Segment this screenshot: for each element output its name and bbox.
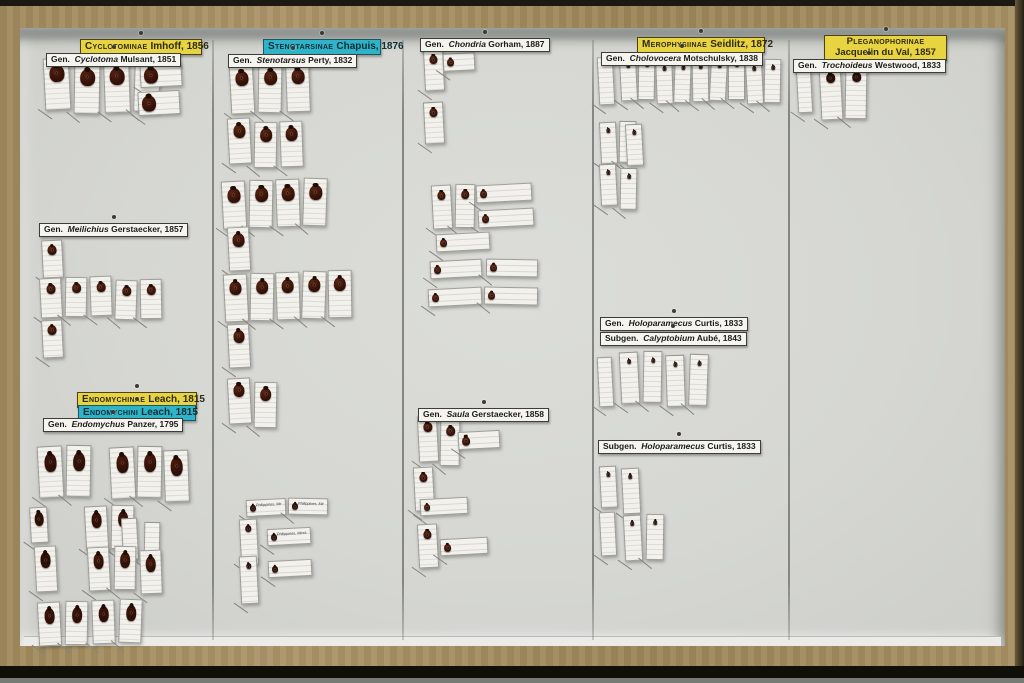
- pin-wire: [720, 98, 734, 109]
- pin-head: [55, 72, 57, 74]
- pin-wire: [630, 98, 644, 109]
- pin-wire: [321, 316, 335, 327]
- locality-caption: Philippines, Mindanao: [256, 501, 282, 507]
- specimen-card: [440, 537, 489, 556]
- pin-wire: [478, 274, 492, 285]
- beetle-specimen: [142, 95, 157, 112]
- specimen-card: [764, 59, 782, 103]
- pin-head: [314, 191, 316, 193]
- beetle-specimen: [232, 233, 245, 248]
- taxon-author: Aubé, 1843: [695, 333, 742, 343]
- pin-wire: [635, 401, 649, 412]
- specimen-card: [254, 382, 278, 428]
- rank-prefix: Gen.: [51, 54, 75, 64]
- beetle-specimen: [144, 453, 156, 472]
- pin-head: [654, 522, 656, 524]
- taxon-author: Leach, 1815: [141, 407, 198, 418]
- specimen-card: Philippines, Mindanao: [246, 498, 287, 517]
- specimen-card: [646, 514, 665, 560]
- specimen-card: [109, 446, 137, 499]
- specimen-card: [87, 546, 111, 591]
- pin-wire: [269, 319, 283, 330]
- pin-head: [426, 426, 428, 428]
- specimen-card: [476, 183, 533, 204]
- pin-wire: [756, 101, 770, 112]
- specimen-card: [275, 272, 301, 321]
- specimen-card: [140, 279, 163, 319]
- specimen-card: [621, 468, 641, 515]
- pin-wire: [421, 306, 435, 317]
- pin-head: [294, 506, 296, 508]
- beetle-specimen: [73, 452, 85, 471]
- specimen-card: [420, 497, 469, 516]
- specimen-card: [417, 416, 439, 463]
- beetle-specimen: [440, 239, 447, 247]
- pin-head: [432, 59, 434, 61]
- pin-wire: [432, 464, 446, 475]
- beetle-specimen: [285, 127, 297, 141]
- taxon-name: Holoparamecus: [641, 441, 705, 451]
- pin-head: [48, 615, 50, 617]
- specimen-card: [328, 270, 353, 318]
- specimen-card: [227, 323, 251, 368]
- pin-head: [98, 560, 100, 562]
- pin-head: [426, 507, 428, 509]
- specimen-card: [34, 545, 58, 592]
- rank-prefix: Gen.: [44, 224, 68, 234]
- pin-head: [75, 287, 77, 289]
- specimen-card: [819, 65, 844, 120]
- pin-head: [95, 519, 97, 521]
- pin-wire: [273, 166, 287, 177]
- beetle-specimen: [291, 69, 305, 84]
- pin-wire: [107, 317, 121, 329]
- beetle-specimen: [93, 553, 104, 570]
- pin-head: [44, 559, 46, 561]
- specimen-card: [118, 599, 143, 644]
- pin-head: [130, 612, 132, 614]
- beetle-specimen: [606, 170, 610, 175]
- specimen-card: [301, 271, 327, 320]
- specimen-card: [417, 524, 439, 569]
- beetle-specimen: [630, 521, 634, 526]
- pin-head: [446, 547, 448, 549]
- beetle-specimen: [260, 128, 272, 142]
- pin-head: [422, 477, 424, 479]
- beetle-specimen: [245, 525, 251, 532]
- pin-head: [682, 67, 684, 69]
- taxon-label-trochoideus-genus: Gen. Trochoideus Westwood, 1833: [793, 59, 946, 73]
- pin-head: [135, 384, 139, 388]
- pin-head: [607, 172, 609, 174]
- taxon-author: Mulsant, 1851: [118, 54, 176, 64]
- pin-head: [150, 74, 152, 76]
- pin-wire: [250, 111, 264, 122]
- locality-caption: Philippines, Mindanao: [277, 530, 307, 536]
- specimen-card: [478, 208, 535, 229]
- rank-prefix: Gen.: [798, 60, 822, 70]
- specimen-card: [268, 559, 313, 578]
- beetle-specimen: [447, 58, 454, 66]
- specimen-card: [227, 226, 251, 271]
- pin-head: [432, 112, 434, 114]
- rank-prefix: Subgen.: [603, 441, 641, 451]
- pin-head: [434, 297, 436, 299]
- beetle-specimen: [256, 280, 268, 294]
- specimen-card: [114, 546, 137, 590]
- taxon-label-cholovocera-genus: Gen. Cholovocera Motschulsky, 1838: [601, 52, 763, 66]
- specimen-card: [65, 601, 89, 645]
- pin-wire: [82, 590, 96, 601]
- beetle-specimen: [80, 69, 95, 86]
- specimen-card: [65, 277, 88, 317]
- specimen-card: [137, 446, 163, 498]
- pin-head: [313, 284, 315, 286]
- taxon-author: Seidlitz, 1872: [710, 39, 773, 50]
- beetle-specimen: [632, 130, 636, 135]
- beetle-specimen: [419, 473, 427, 482]
- column-separator-4: [788, 40, 790, 640]
- specimen-card: [229, 63, 256, 114]
- pin-head: [449, 62, 451, 64]
- specimen-card: [745, 60, 764, 105]
- pin-wire: [246, 426, 260, 437]
- pin-head: [677, 432, 681, 436]
- pin-head: [269, 76, 271, 78]
- pin-head: [78, 460, 80, 462]
- pin-wire: [83, 314, 97, 325]
- beetle-specimen: [145, 556, 156, 572]
- beetle-specimen: [697, 361, 701, 366]
- pin-wire: [418, 90, 432, 101]
- specimen-card: [227, 377, 252, 424]
- beetle-specimen: [281, 279, 293, 293]
- pin-head: [51, 249, 53, 251]
- pin-wire: [269, 226, 283, 237]
- specimen-card: [599, 164, 618, 207]
- beetle-specimen: [446, 426, 455, 436]
- specimen-card: [139, 550, 163, 595]
- taxon-author: Curtis, 1833: [692, 318, 743, 328]
- specimen-card: [431, 185, 453, 230]
- specimen-card: [91, 600, 116, 645]
- pin-head: [855, 76, 857, 78]
- pin-wire: [222, 367, 236, 378]
- pin-wire: [85, 643, 99, 654]
- beetle-specimen: [423, 422, 433, 432]
- specimen-card: [436, 232, 491, 253]
- pin-head: [320, 31, 324, 35]
- beetle-specimen: [482, 215, 489, 223]
- rank-prefix: Gen.: [423, 409, 447, 419]
- specimen-card: [458, 430, 501, 450]
- column-separator-1: [212, 40, 214, 640]
- beetle-specimen: [628, 474, 632, 479]
- pin-head: [698, 363, 700, 365]
- beetle-specimen: [122, 286, 131, 296]
- pin-head: [449, 430, 451, 432]
- pin-wire: [157, 501, 171, 512]
- column-separator-3: [592, 40, 594, 640]
- pin-head: [297, 75, 299, 77]
- pin-wire: [111, 640, 125, 652]
- pin-head: [274, 569, 276, 571]
- beetle-specimen: [309, 185, 323, 200]
- pin-head: [442, 242, 444, 244]
- pin-wire: [38, 109, 52, 120]
- beetle-specimen: [44, 453, 57, 473]
- taxon-author: Leach, 1815: [148, 394, 205, 405]
- taxon-name: Merophysiinae: [642, 39, 710, 50]
- specimen-card: [285, 62, 311, 113]
- rank-prefix: Gen.: [605, 318, 629, 328]
- specimen-card: [84, 505, 109, 550]
- pin-head: [672, 309, 676, 313]
- beetle-specimen: [825, 73, 835, 83]
- rank-prefix: Gen.: [233, 55, 257, 65]
- pin-head: [633, 132, 635, 134]
- specimen-card: [239, 556, 259, 605]
- pin-head: [753, 68, 755, 70]
- rank-prefix: Gen.: [425, 39, 449, 49]
- pin-head: [440, 195, 442, 197]
- pin-head: [261, 286, 263, 288]
- taxon-label-saula-genus: Gen. Saula Gerstaecker, 1858: [418, 408, 549, 422]
- specimen-card: [428, 287, 483, 308]
- pin-wire: [246, 166, 260, 177]
- rank-prefix: Gen.: [48, 419, 72, 429]
- taxon-label-calyptobium-subgenus: Subgen. Calyptobium Aubé, 1843: [600, 332, 747, 346]
- beetle-specimen: [429, 55, 437, 64]
- taxon-author: Imhoff, 1856: [151, 41, 209, 52]
- beetle-specimen: [126, 605, 137, 621]
- pin-head: [238, 389, 240, 391]
- taxon-author: Gorham, 1887: [486, 39, 545, 49]
- pin-head: [252, 508, 254, 510]
- pin-head: [628, 361, 630, 363]
- beetle-specimen: [771, 65, 775, 70]
- beetle-specimen: [72, 607, 82, 623]
- beetle-specimen: [423, 530, 431, 539]
- beetle-specimen: [662, 66, 666, 71]
- pin-head: [607, 474, 609, 476]
- beetle-specimen: [272, 566, 278, 573]
- beetle-specimen: [170, 457, 183, 476]
- taxon-author: Panzer, 1795: [125, 419, 178, 429]
- pin-head: [273, 537, 275, 539]
- pin-wire: [234, 603, 248, 614]
- beetle-specimen: [233, 330, 245, 344]
- taxon-author: Gerstaecker, 1857: [109, 224, 184, 234]
- pin-head: [148, 102, 150, 104]
- pin-head: [663, 68, 665, 70]
- pin-wire: [614, 403, 628, 414]
- beetle-specimen: [34, 512, 44, 526]
- pin-wire: [594, 205, 608, 216]
- pin-wire: [97, 112, 111, 123]
- pin-wire: [412, 567, 426, 578]
- pin-wire: [66, 112, 80, 123]
- pin-head: [772, 67, 774, 69]
- pin-head: [247, 528, 249, 530]
- beetle-specimen: [116, 454, 129, 474]
- beetle-specimen: [429, 108, 437, 117]
- specimen-card: [37, 601, 62, 646]
- content-layer: Philippines, MindanaoPhilippines, Mindan…: [0, 0, 1024, 683]
- pin-head: [100, 286, 102, 288]
- pin-head: [680, 44, 684, 48]
- pin-head: [492, 267, 494, 269]
- pin-head: [629, 476, 631, 478]
- beetle-specimen: [233, 124, 246, 139]
- specimen-card: [89, 276, 112, 317]
- specimen-card: [597, 357, 615, 408]
- beetle-specimen: [72, 283, 81, 293]
- pin-head: [116, 75, 118, 77]
- beetle-specimen: [281, 186, 295, 201]
- pin-wire: [701, 98, 714, 110]
- pin-head: [86, 76, 88, 78]
- specimen-card: [29, 507, 49, 544]
- beetle-specimen: [40, 552, 51, 569]
- pin-head: [884, 27, 888, 31]
- specimen-drawer-photo: Philippines, MindanaoPhilippines, Mindan…: [0, 0, 1024, 683]
- taxon-author: Chapuis, 1876: [336, 41, 403, 52]
- pin-head: [291, 46, 295, 50]
- beetle-specimen: [308, 278, 320, 292]
- beetle-specimen: [47, 245, 57, 255]
- specimen-card: [486, 259, 538, 278]
- specimen-card: [227, 117, 252, 164]
- beetle-specimen: [606, 472, 610, 477]
- specimen-card: [103, 61, 131, 114]
- specimen-card: [643, 351, 663, 403]
- pin-head: [49, 288, 51, 290]
- beetle-specimen: [424, 504, 430, 511]
- pin-wire: [294, 316, 308, 328]
- pin-wire: [222, 163, 236, 174]
- pin-head: [490, 295, 492, 297]
- pin-head: [484, 218, 486, 220]
- taxon-author: Jacquelin du Val, 1857: [829, 48, 942, 59]
- pin-wire: [649, 102, 663, 113]
- pin-head: [287, 192, 289, 194]
- pin-wire: [685, 100, 699, 111]
- beetle-specimen: [444, 543, 451, 551]
- taxon-name: Endomychus: [72, 419, 125, 429]
- pin-head: [287, 285, 289, 287]
- specimen-card: [845, 65, 868, 119]
- taxon-author: Westwood, 1833: [872, 60, 940, 70]
- pin-head: [482, 400, 486, 404]
- beetle-specimen: [235, 71, 249, 87]
- beetle-specimen: [627, 174, 631, 179]
- column-separator-2: [402, 40, 404, 640]
- taxon-name: Stenotarsus: [257, 55, 306, 65]
- taxon-name: Saula: [447, 409, 470, 419]
- specimen-card: [688, 354, 709, 407]
- beetle-specimen: [120, 552, 130, 568]
- specimen-card: [66, 445, 92, 497]
- beetle-specimen: [246, 563, 251, 569]
- beetle-specimen: [606, 128, 610, 133]
- pin-head: [483, 30, 487, 34]
- pin-wire: [261, 576, 275, 587]
- beetle-specimen: [98, 606, 109, 622]
- pin-wire: [222, 423, 236, 434]
- pin-head: [237, 239, 239, 241]
- pin-head: [102, 613, 104, 615]
- pin-head: [175, 465, 177, 467]
- specimen-card: [599, 466, 618, 509]
- pin-head: [49, 461, 51, 463]
- pin-head: [125, 290, 127, 292]
- beetle-specimen: [229, 281, 242, 296]
- pin-wire: [260, 544, 274, 555]
- pin-head: [232, 194, 234, 196]
- taxon-label-chondria-genus: Gen. Chondria Gorham, 1887: [420, 38, 550, 52]
- taxon-author: Gerstaecker, 1858: [469, 409, 544, 419]
- specimen-card: [250, 273, 275, 321]
- specimen-card: [279, 121, 304, 168]
- beetle-specimen: [334, 277, 346, 291]
- beetle-specimen: [480, 190, 487, 198]
- specimen-card: [163, 450, 190, 503]
- pin-wire: [57, 643, 71, 654]
- pin-head: [339, 283, 341, 285]
- taxon-name: Trochoideus: [822, 60, 873, 70]
- specimen-card: [41, 239, 64, 278]
- pin-head: [38, 518, 40, 520]
- pin-wire: [638, 558, 652, 569]
- specimen-card: [796, 67, 813, 114]
- specimen-card: [221, 180, 247, 229]
- pin-wire: [58, 495, 72, 506]
- pin-head: [124, 559, 126, 561]
- pin-head: [135, 397, 139, 401]
- pin-head: [150, 563, 152, 565]
- taxon-label-cyclotoma-genus: Gen. Cyclotoma Mulsant, 1851: [46, 53, 181, 67]
- pin-head: [628, 176, 630, 178]
- pin-head: [237, 335, 239, 337]
- beetle-specimen: [255, 187, 268, 202]
- taxon-name: Chondria: [449, 39, 486, 49]
- beetle-specimen: [627, 359, 631, 364]
- specimen-card: [37, 445, 65, 498]
- rank-prefix: Subgen.: [605, 333, 643, 343]
- pin-head: [121, 462, 123, 464]
- specimen-card: [74, 62, 101, 114]
- specimen-card: [625, 124, 644, 167]
- pin-wire: [837, 117, 851, 128]
- pin-wire: [418, 143, 432, 154]
- pin-head: [607, 130, 609, 132]
- beetle-specimen: [651, 358, 655, 363]
- pin-wire: [618, 560, 632, 571]
- taxon-label-endomychus-genus: Gen. Endomychus Panzer, 1795: [43, 418, 183, 432]
- specimen-card: [423, 102, 445, 145]
- pin-wire: [29, 591, 43, 602]
- pin-head: [238, 130, 240, 132]
- taxon-label-pleganophorinae-family: PleganophorinaeJacquelin du Val, 1857: [824, 35, 947, 61]
- specimen-card: [484, 287, 538, 306]
- beetle-specimen: [91, 512, 102, 529]
- specimen-card: [455, 184, 476, 228]
- beetle-specimen: [233, 384, 245, 398]
- beetle-specimen: [490, 264, 497, 272]
- pin-head: [260, 193, 262, 195]
- pin-head: [149, 461, 151, 463]
